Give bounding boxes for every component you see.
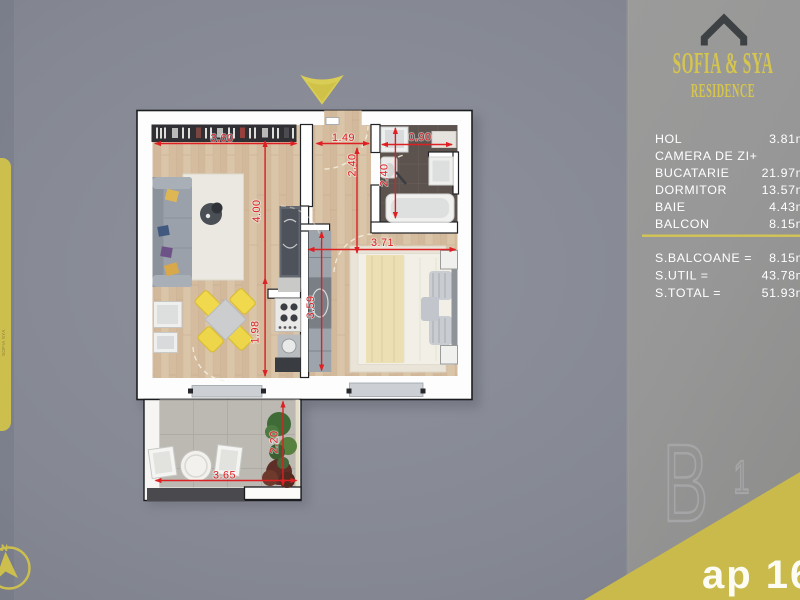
svg-text:BALCON: BALCON [655,217,710,231]
svg-text:21.97mp: 21.97mp [762,166,800,180]
svg-text:BUCATARIE: BUCATARIE [655,166,729,180]
svg-text:3.65: 3.65 [213,470,236,482]
svg-text:1.49: 1.49 [332,132,355,144]
svg-text:8.15mp: 8.15mp [769,217,800,231]
svg-text:4.00: 4.00 [251,199,263,222]
svg-text:SOFIA & SYA: SOFIA & SYA [673,48,774,81]
svg-text:2.40: 2.40 [379,163,391,186]
svg-text:N: N [1,543,8,554]
svg-text:1.98: 1.98 [250,320,262,343]
svg-text:HOL: HOL [655,132,682,146]
svg-text:3.60: 3.60 [210,133,233,145]
svg-text:2.40: 2.40 [347,153,359,176]
svg-text:B: B [663,422,708,545]
svg-text:SOFIA SYA: SOFIA SYA [1,329,6,356]
svg-text:8.15mp: 8.15mp [769,251,800,265]
svg-text:3.71: 3.71 [371,237,394,249]
svg-text:RESIDENCE: RESIDENCE [691,79,755,102]
svg-text:4.43mp: 4.43mp [769,200,800,214]
svg-text:51.93mp: 51.93mp [762,286,800,300]
svg-text:S.BALCOANE =: S.BALCOANE = [655,251,752,265]
svg-text:43.78mp: 43.78mp [762,269,800,283]
svg-text:S.UTIL =: S.UTIL = [655,269,709,283]
svg-text:2.20: 2.20 [269,430,281,453]
svg-text:S.TOTAL =: S.TOTAL = [655,286,721,300]
svg-text:1: 1 [733,452,749,504]
svg-text:3.81mp: 3.81mp [769,132,800,146]
svg-text:DORMITOR: DORMITOR [655,183,727,197]
svg-text:ap 16: ap 16 [702,553,800,597]
svg-text:BAIE: BAIE [655,200,686,214]
svg-text:CAMERA DE ZI+: CAMERA DE ZI+ [655,149,757,163]
svg-text:13.57mp: 13.57mp [762,183,800,197]
svg-text:3.59: 3.59 [305,295,317,318]
svg-text:0.90: 0.90 [408,132,431,144]
